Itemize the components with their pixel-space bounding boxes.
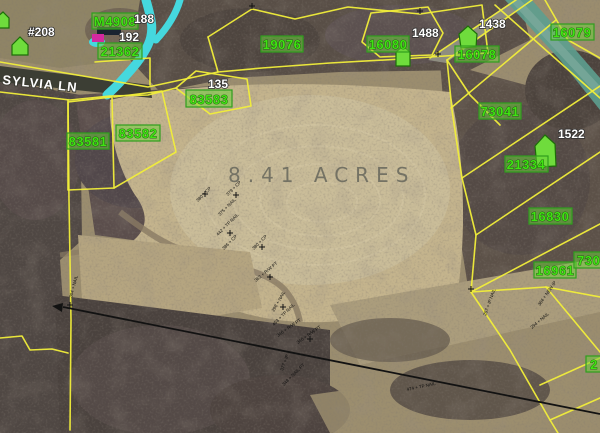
parcel-label-19076[interactable]: 19076 — [261, 36, 303, 52]
parcel-label-21334[interactable]: 21334 — [505, 156, 548, 172]
parcel-label-16961[interactable]: 16961 — [534, 262, 576, 278]
parcel-number: 16830 — [531, 209, 570, 224]
map-canvas[interactable]: 380 + CP 379 + CP 375 + NAIL 442 + TP NA… — [0, 0, 600, 433]
parcel-number: 7304 — [577, 253, 600, 268]
parcel-label-16830[interactable]: 16830 — [529, 208, 572, 224]
address-label: 1488 — [412, 26, 439, 40]
parcel-number: 73041 — [481, 104, 520, 119]
parcel-number: M4908 — [94, 14, 136, 29]
parcel-number: 83581 — [69, 134, 108, 149]
parcel-label-21362[interactable]: 21362 — [98, 43, 142, 59]
address-label: 188 — [134, 12, 154, 26]
parcel-number: 16961 — [536, 263, 575, 278]
parcel-number: 16079 — [553, 25, 592, 40]
parcel-number: 19076 — [263, 37, 302, 52]
parcel-number: 16078 — [458, 47, 497, 62]
parcel-label-M4908[interactable]: M4908 — [92, 13, 138, 29]
address-label: 135 — [208, 77, 228, 91]
parcel-label-16078[interactable]: 16078 — [455, 46, 499, 62]
parcel-label-2-partial[interactable]: 2 — [586, 356, 600, 372]
acreage-label: 8.41 ACRES — [228, 163, 415, 187]
address-label: 1438 — [479, 17, 506, 31]
parcel-number: 21362 — [101, 44, 140, 59]
parcel-number: 21334 — [507, 157, 546, 172]
parcel-label-7304-partial[interactable]: 7304 — [574, 252, 600, 268]
parcel-label-83583[interactable]: 83583 — [186, 90, 232, 107]
symbol-magenta-patch — [92, 34, 104, 42]
parcel-number: 2 — [590, 357, 598, 372]
parcel-label-16079[interactable]: 16079 — [551, 24, 594, 40]
parcel-number: 83582 — [119, 126, 158, 141]
parcel-number: 83583 — [190, 92, 229, 107]
address-label: #208 — [28, 25, 55, 39]
parcel-number: 16080 — [369, 37, 408, 52]
parcel-label-83582[interactable]: 83582 — [116, 125, 160, 141]
parcel-label-16080[interactable]: 16080 — [367, 36, 409, 52]
address-label: 192 — [119, 30, 139, 44]
gis-map-view[interactable]: 380 + CP 379 + CP 375 + NAIL 442 + TP NA… — [0, 0, 600, 433]
address-label: 1522 — [558, 127, 585, 141]
parcel-label-83581[interactable]: 83581 — [67, 133, 109, 149]
parcel-label-73041[interactable]: 73041 — [479, 103, 521, 119]
